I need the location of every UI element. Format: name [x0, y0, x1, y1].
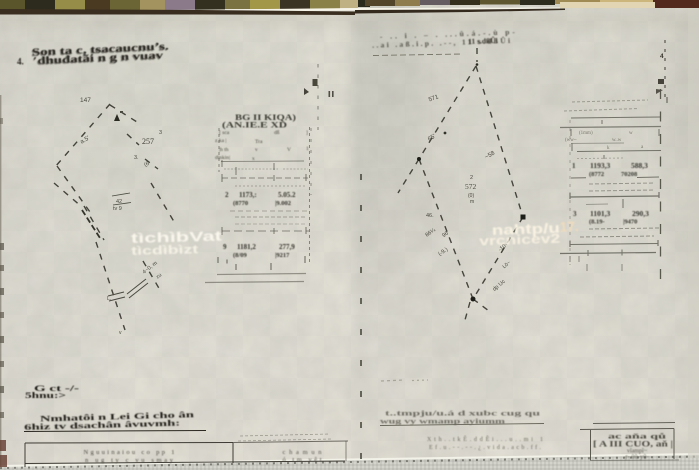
svg-text:1173,:: 1173,: — [239, 191, 257, 199]
svg-text:L.: L. — [107, 296, 111, 302]
svg-text:|9217: |9217 — [275, 252, 290, 259]
svg-text:(8.19-: (8.19- — [589, 219, 605, 226]
svg-text:(AN.IE.E XD: (AN.IE.E XD — [222, 121, 287, 130]
svg-text:vrcnicev2: vrcnicev2 — [479, 232, 561, 249]
svg-text:5.05.2: 5.05.2 — [278, 191, 296, 199]
svg-text:1181,2: 1181,2 — [237, 243, 256, 251]
svg-text:11 s.dßÛi: 11 s.dßÛi — [468, 35, 498, 46]
svg-text:1101,3: 1101,3 — [590, 209, 610, 218]
svg-text:[ A III CUO, aň |: [ A III CUO, aň | — [593, 440, 673, 449]
svg-text:1: 1 — [306, 146, 309, 152]
svg-text:(8770: (8770 — [233, 200, 248, 207]
svg-text:[ sca: [ sca — [219, 130, 230, 136]
svg-text:588,3: 588,3 — [631, 161, 648, 170]
svg-text:(1mm): (1mm) — [579, 131, 593, 136]
svg-text:w: w — [629, 131, 633, 136]
svg-text:dinkin|: dinkin| — [215, 155, 230, 161]
svg-text:3.: 3. — [134, 155, 139, 161]
svg-text:Xth..tkÊ.ddÊi...u..mi 1: Xth..tkÊ.ddÊi...u..mi 1 — [427, 435, 543, 443]
svg-text:572: 572 — [465, 182, 477, 191]
svg-text:1193,3: 1193,3 — [590, 161, 610, 170]
svg-text:z.ka |: z.ka | — [215, 138, 226, 144]
svg-text:(8/09: (8/09 — [233, 252, 247, 259]
svg-text:17.: 17. — [560, 219, 579, 235]
svg-text:2: 2 — [225, 191, 229, 199]
svg-text:5hnu:>: 5hnu:> — [25, 390, 66, 400]
svg-text:Nguuinaiou co pp 1: Nguuinaiou co pp 1 — [84, 449, 175, 456]
svg-text:277,9: 277,9 — [279, 243, 295, 251]
svg-text:147: 147 — [80, 97, 91, 104]
svg-text:1: 1 — [572, 162, 576, 170]
svg-text:46.: 46. — [426, 213, 434, 219]
svg-text:3: 3 — [573, 210, 577, 218]
svg-text:(8772: (8772 — [589, 171, 604, 178]
svg-text:tìchìbVat: tìchìbVat — [131, 229, 223, 246]
svg-text:290,3: 290,3 — [632, 209, 649, 218]
svg-text:Tra: Tra — [255, 139, 263, 145]
svg-text:tv 9: tv 9 — [113, 206, 122, 212]
svg-text:|9.002: |9.002 — [275, 200, 291, 207]
svg-text:ŗ- ũũ-yũ-: ŗ- ũũ-yũ- — [625, 454, 648, 461]
svg-text:tìcdìbìzt: tìcdìbìzt — [131, 244, 199, 258]
svg-text:4: 4 — [660, 53, 664, 60]
svg-text:4.: 4. — [17, 57, 24, 67]
svg-text:dß: dß — [274, 129, 280, 136]
svg-text:V: V — [287, 147, 291, 153]
svg-text:257: 257 — [142, 137, 154, 146]
svg-text:|h th: |h th — [219, 147, 229, 153]
svg-text:(ww~: (ww~ — [565, 138, 577, 143]
svg-text:9: 9 — [223, 243, 227, 251]
svg-text:3: 3 — [159, 130, 162, 136]
svg-text:70208: 70208 — [621, 171, 638, 178]
svg-text:m: m — [470, 199, 474, 205]
svg-text:w..w: w..w — [612, 138, 622, 143]
svg-text:2: 2 — [470, 175, 473, 181]
svg-text:|9470: |9470 — [623, 219, 637, 226]
svg-text:v: v — [255, 147, 258, 153]
svg-text:]: ] — [306, 130, 308, 136]
